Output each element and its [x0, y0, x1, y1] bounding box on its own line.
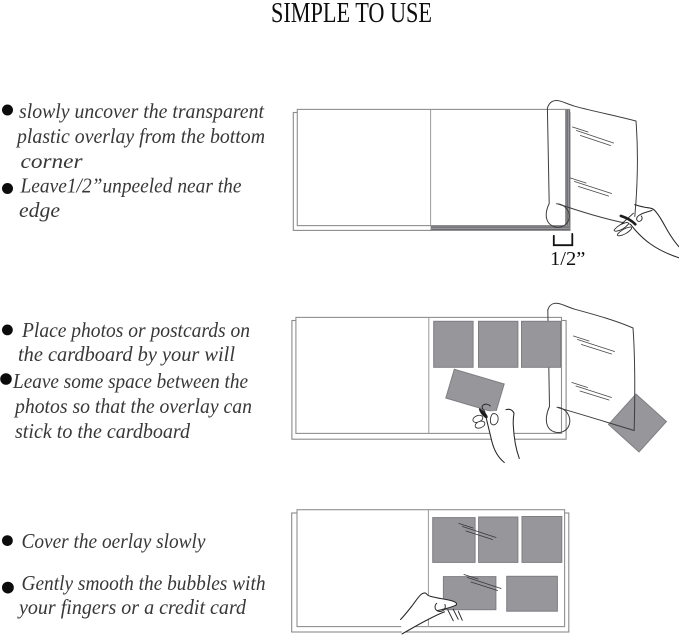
svg-text:Gently smooth the bubbles with: Gently smooth the bubbles with [22, 571, 266, 595]
svg-text:corner: corner [21, 149, 84, 173]
svg-text:stick to the cardboard: stick to the cardboard [15, 419, 190, 443]
svg-text:Leave1/2”unpeeled near the: Leave1/2”unpeeled near the [20, 174, 242, 198]
svg-text:photos so that the overlay can: photos so that the overlay can [13, 394, 252, 418]
svg-text:Place photos or postcards on: Place photos or postcards on [21, 318, 250, 342]
svg-text:SIMPLE TO USE: SIMPLE TO USE [271, 0, 432, 29]
svg-text:the cardboard by your will: the cardboard by your will [18, 342, 235, 366]
svg-text:plastic overlay from the botto: plastic overlay from the bottom [15, 124, 265, 148]
svg-text:your fingers or a credit card: your fingers or a credit card [17, 595, 246, 619]
svg-text:slowly uncover the transparent: slowly uncover the transparent [19, 99, 265, 123]
svg-text:Leave some space between the: Leave some space between the [12, 369, 248, 393]
svg-text:1/2”: 1/2” [550, 248, 585, 270]
svg-text:Cover the oerlay slowly: Cover the oerlay slowly [22, 529, 206, 553]
svg-text:edge: edge [19, 198, 60, 222]
